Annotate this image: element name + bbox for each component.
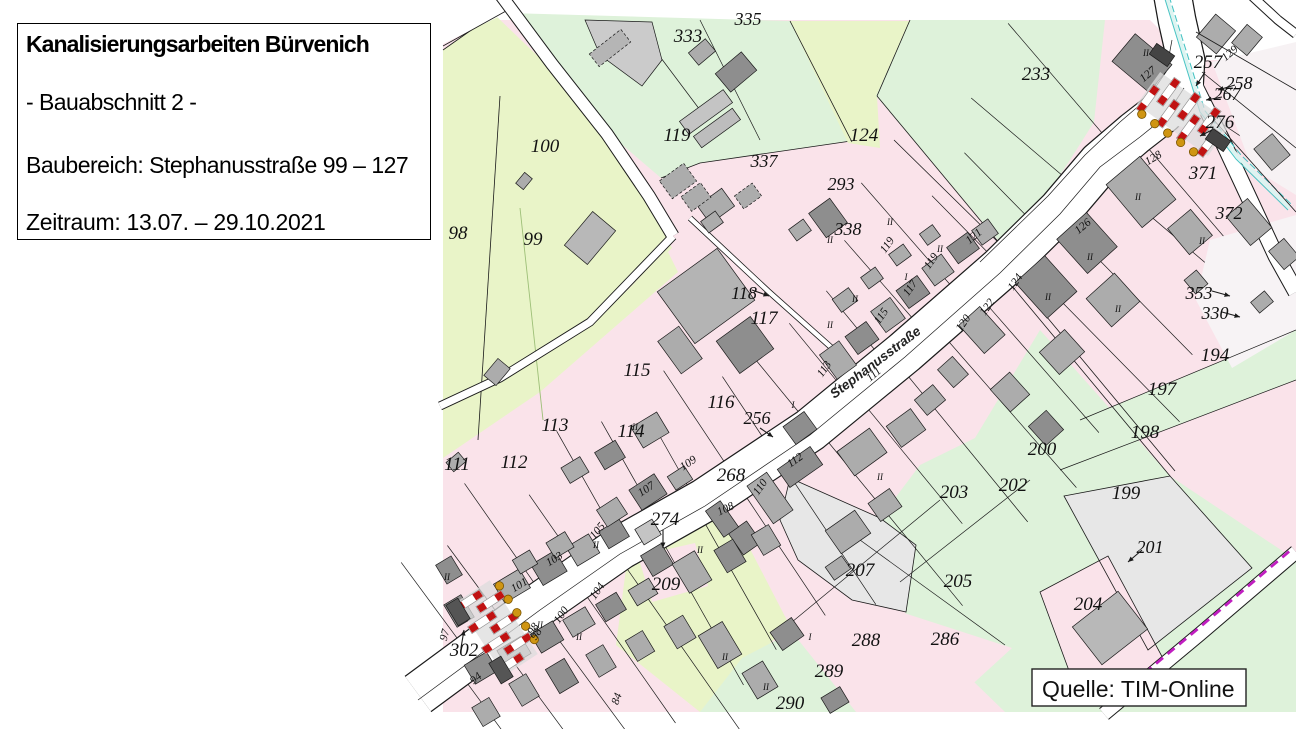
svg-text:274: 274	[651, 509, 680, 530]
svg-text:200: 200	[1028, 439, 1057, 460]
svg-text:II: II	[1114, 304, 1122, 314]
svg-text:100: 100	[531, 136, 560, 157]
svg-text:II: II	[443, 572, 451, 582]
svg-text:II: II	[536, 620, 544, 630]
svg-text:205: 205	[944, 571, 973, 592]
svg-text:II: II	[762, 682, 770, 692]
svg-text:113: 113	[541, 415, 568, 436]
svg-text:203: 203	[940, 482, 969, 503]
svg-text:II: II	[826, 235, 834, 245]
svg-text:207: 207	[846, 560, 876, 581]
svg-text:256: 256	[744, 408, 771, 428]
svg-text:Quelle: TIM-Online: Quelle: TIM-Online	[1042, 676, 1235, 702]
svg-text:116: 116	[707, 392, 735, 413]
svg-text:335: 335	[734, 9, 762, 29]
svg-text:115: 115	[623, 360, 650, 381]
svg-text:371: 371	[1188, 163, 1218, 184]
svg-text:111: 111	[444, 454, 470, 475]
svg-text:290: 290	[776, 693, 805, 714]
svg-text:276: 276	[1206, 112, 1235, 133]
svg-text:286: 286	[931, 629, 960, 650]
svg-text:98: 98	[449, 223, 469, 244]
svg-text:202: 202	[999, 475, 1028, 496]
svg-text:198: 198	[1131, 422, 1160, 443]
svg-text:268: 268	[717, 465, 746, 486]
svg-text:II: II	[1086, 252, 1094, 262]
svg-text:338: 338	[834, 219, 862, 239]
svg-text:II: II	[936, 244, 944, 254]
svg-text:II: II	[592, 540, 600, 550]
svg-text:II: II	[876, 472, 884, 482]
svg-text:II: II	[1142, 48, 1150, 58]
svg-text:II: II	[851, 294, 859, 304]
svg-text:204: 204	[1074, 594, 1103, 615]
svg-text:201: 201	[1137, 537, 1164, 557]
svg-text:372: 372	[1215, 203, 1243, 223]
svg-text:119: 119	[663, 125, 691, 146]
svg-text:II: II	[575, 632, 583, 642]
svg-text:118: 118	[731, 283, 757, 303]
svg-text:288: 288	[852, 630, 881, 651]
svg-text:II: II	[696, 545, 704, 555]
svg-text:II: II	[886, 217, 894, 227]
svg-text:II: II	[1044, 292, 1052, 302]
svg-text:302: 302	[449, 640, 479, 661]
svg-text:II: II	[721, 652, 729, 662]
svg-text:353: 353	[1185, 283, 1213, 303]
svg-text:II: II	[1198, 236, 1206, 246]
svg-text:197: 197	[1148, 379, 1178, 400]
svg-text:333: 333	[673, 26, 703, 47]
svg-text:II: II	[826, 320, 834, 330]
svg-text:99: 99	[524, 229, 544, 250]
svg-text:117: 117	[750, 308, 779, 329]
svg-text:293: 293	[828, 174, 855, 194]
svg-text:289: 289	[815, 661, 844, 682]
svg-text:233: 233	[1022, 64, 1051, 85]
svg-text:II: II	[631, 422, 639, 432]
svg-text:209: 209	[652, 574, 681, 595]
svg-text:II: II	[1134, 192, 1142, 202]
svg-text:337: 337	[750, 151, 779, 171]
svg-text:124: 124	[850, 125, 879, 146]
svg-text:199: 199	[1112, 483, 1141, 504]
svg-text:194: 194	[1201, 345, 1230, 366]
svg-text:112: 112	[500, 452, 528, 473]
